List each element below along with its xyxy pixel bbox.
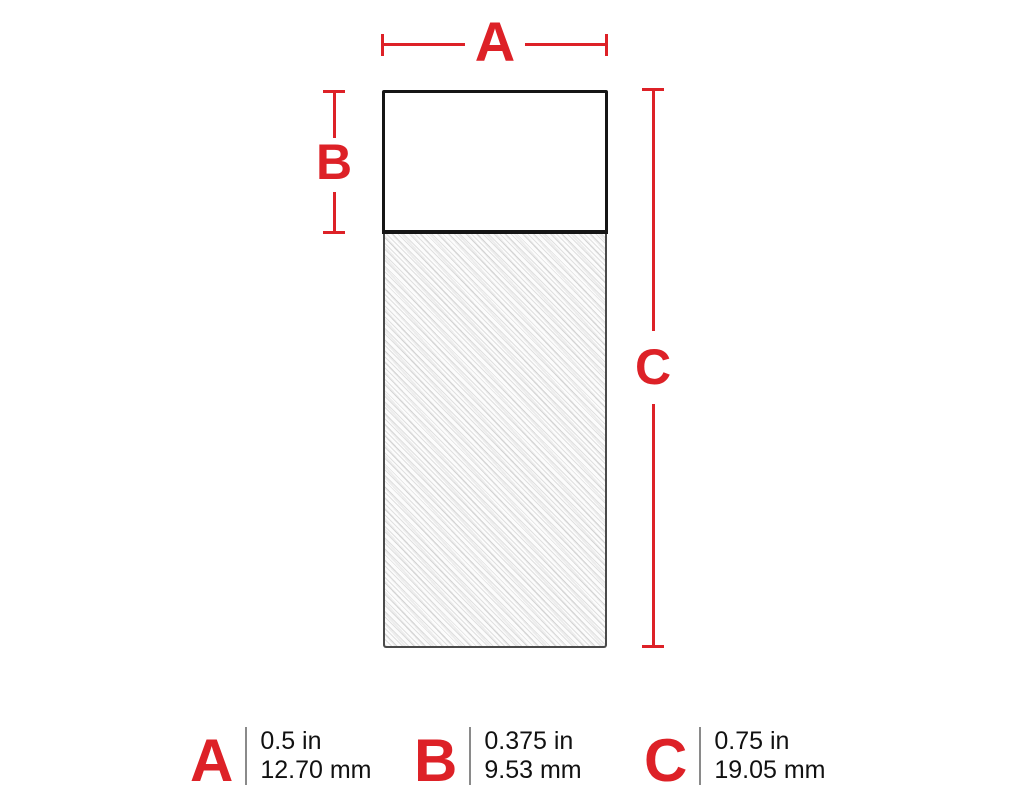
dim-a-line-right-segment <box>525 43 608 46</box>
dim-b-line-top-segment <box>333 90 336 138</box>
legend-values-b: 0.375 in 9.53 mm <box>484 727 581 785</box>
dim-c-bottom-tick <box>642 645 664 648</box>
legend-letter-a: A <box>190 732 233 790</box>
dim-c-line-bottom-segment <box>652 404 655 648</box>
legend-c-mm: 19.05 mm <box>714 756 825 785</box>
legend-item-c: C 0.75 in 19.05 mm <box>644 726 826 786</box>
legend-a-mm: 12.70 mm <box>260 756 371 785</box>
dim-b-line-bottom-segment <box>333 192 336 234</box>
legend-divider <box>699 727 701 785</box>
label-hatched-tail-area <box>383 234 607 648</box>
legend-item-a: A 0.5 in 12.70 mm <box>190 726 372 786</box>
dim-a-label: A <box>465 16 525 68</box>
legend-values-a: 0.5 in 12.70 mm <box>260 727 371 785</box>
legend-b-inches: 0.375 in <box>484 727 581 756</box>
legend-divider <box>245 727 247 785</box>
dim-a-line-left-segment <box>381 43 465 46</box>
label-printable-area <box>382 90 608 234</box>
legend-letter-c: C <box>644 732 687 790</box>
dim-b-bottom-tick <box>323 231 345 234</box>
legend-a-inches: 0.5 in <box>260 727 371 756</box>
dim-b-label: B <box>304 139 364 185</box>
dim-c-line-top-segment <box>652 88 655 331</box>
label-dimension-diagram: A B C A 0.5 in 12.70 mm B 0.375 in 9.53 … <box>0 0 1024 800</box>
legend-item-b: B 0.375 in 9.53 mm <box>414 726 582 786</box>
dim-c-label: C <box>623 344 683 390</box>
dim-a-right-tick <box>605 34 608 56</box>
legend-values-c: 0.75 in 19.05 mm <box>714 727 825 785</box>
legend-letter-b: B <box>414 732 457 790</box>
legend-c-inches: 0.75 in <box>714 727 825 756</box>
legend-b-mm: 9.53 mm <box>484 756 581 785</box>
legend-divider <box>469 727 471 785</box>
